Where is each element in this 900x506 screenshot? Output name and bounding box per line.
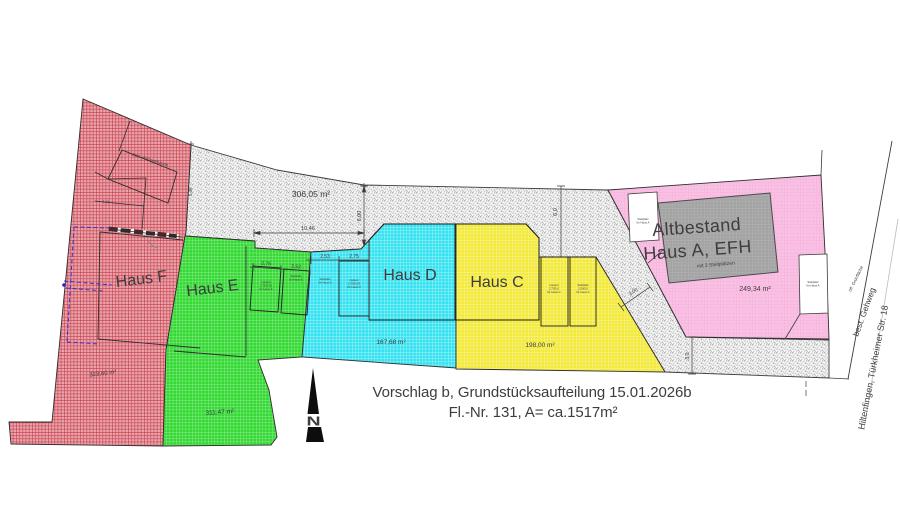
svg-text:5,48: 5,48 — [188, 187, 194, 197]
svg-text:für Haus F: für Haus F — [259, 287, 272, 291]
svg-text:6,0: 6,0 — [553, 208, 559, 216]
svg-text:Haus C: Haus C — [470, 274, 523, 291]
svg-text:2,75: 2,75 — [261, 261, 271, 268]
svg-text:N: N — [306, 414, 320, 429]
svg-text:für Haus D: für Haus D — [318, 281, 331, 285]
svg-text:1,98: 1,98 — [103, 200, 110, 204]
svg-text:167,68 m²: 167,68 m² — [376, 339, 406, 346]
svg-text:für Haus E: für Haus E — [289, 278, 302, 282]
svg-text:für Haus C: für Haus C — [547, 290, 560, 294]
svg-text:249,34 m²: 249,34 m² — [739, 286, 771, 293]
svg-text:2,75: 2,75 — [349, 254, 359, 260]
svg-text:für Haus A: für Haus A — [806, 284, 819, 288]
svg-text:Fl.-Nr. 131, A= ca.1517m²: Fl.-Nr. 131, A= ca.1517m² — [449, 404, 618, 421]
svg-text:Vorschlag b, Grundstücksauftei: Vorschlag b, Grundstücksaufteilung 15.01… — [373, 384, 692, 401]
svg-text:3,0: 3,0 — [685, 352, 691, 359]
svg-text:6,00: 6,00 — [357, 211, 363, 222]
svg-text:2,53: 2,53 — [320, 254, 330, 260]
svg-text:198,00 m²: 198,00 m² — [525, 342, 555, 349]
svg-text:für Haus C: für Haus C — [576, 290, 589, 294]
svg-text:für Haus A: für Haus A — [636, 221, 649, 225]
svg-text:2,52: 2,52 — [291, 264, 301, 271]
svg-text:306,05 m²: 306,05 m² — [292, 189, 330, 199]
svg-text:für Haus D: für Haus D — [347, 285, 360, 289]
svg-text:Haus D: Haus D — [383, 267, 436, 284]
svg-text:10,46: 10,46 — [301, 226, 315, 232]
